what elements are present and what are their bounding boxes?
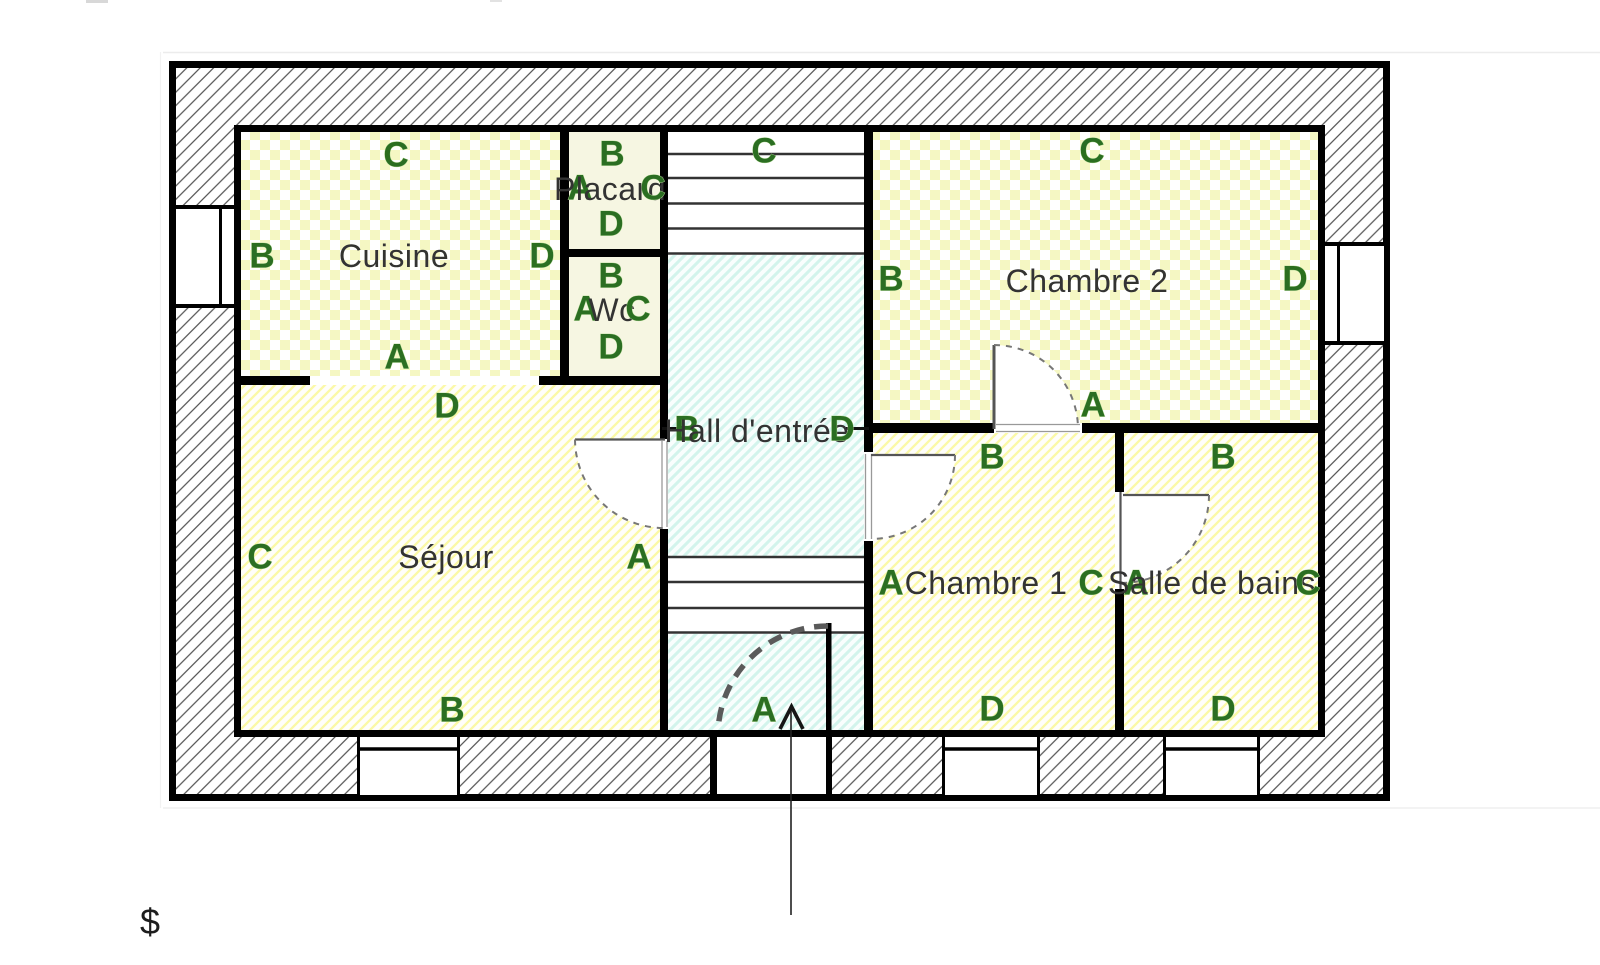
svg-text:D: D: [598, 328, 623, 367]
svg-text:Salle de bains: Salle de bains: [1108, 565, 1316, 601]
svg-text:D: D: [979, 690, 1004, 729]
svg-text:C: C: [1079, 132, 1104, 171]
svg-text:D: D: [598, 205, 623, 244]
svg-text:Chambre 2: Chambre 2: [1006, 263, 1169, 299]
svg-text:Séjour: Séjour: [398, 539, 494, 575]
svg-text:B: B: [599, 135, 624, 174]
svg-text:C: C: [1295, 564, 1320, 603]
svg-text:Cuisine: Cuisine: [339, 238, 449, 274]
svg-text:B: B: [878, 260, 903, 299]
svg-text:C: C: [383, 136, 408, 175]
svg-text:C: C: [247, 538, 272, 577]
svg-text:$: $: [140, 901, 160, 942]
svg-text:B: B: [439, 691, 464, 730]
svg-text:Hall d'entrée: Hall d'entrée: [664, 413, 849, 449]
svg-text:D: D: [434, 387, 459, 426]
svg-text:A: A: [878, 564, 903, 603]
svg-text:C: C: [640, 169, 665, 208]
svg-text:A: A: [384, 338, 409, 377]
svg-text:B: B: [1210, 438, 1235, 477]
svg-text:D: D: [1210, 690, 1235, 729]
svg-text:D: D: [529, 237, 554, 276]
svg-text:A: A: [626, 538, 651, 577]
svg-text:C: C: [1078, 564, 1103, 603]
svg-text:D: D: [1282, 260, 1307, 299]
svg-text:D: D: [829, 410, 854, 449]
svg-text:B: B: [598, 257, 623, 296]
svg-text:A: A: [751, 691, 776, 730]
svg-text:Chambre 1: Chambre 1: [905, 565, 1068, 601]
svg-text:C: C: [625, 290, 650, 329]
svg-text:C: C: [751, 132, 776, 171]
svg-text:B: B: [249, 237, 274, 276]
svg-text:A: A: [1080, 386, 1105, 425]
svg-text:B: B: [979, 438, 1004, 477]
